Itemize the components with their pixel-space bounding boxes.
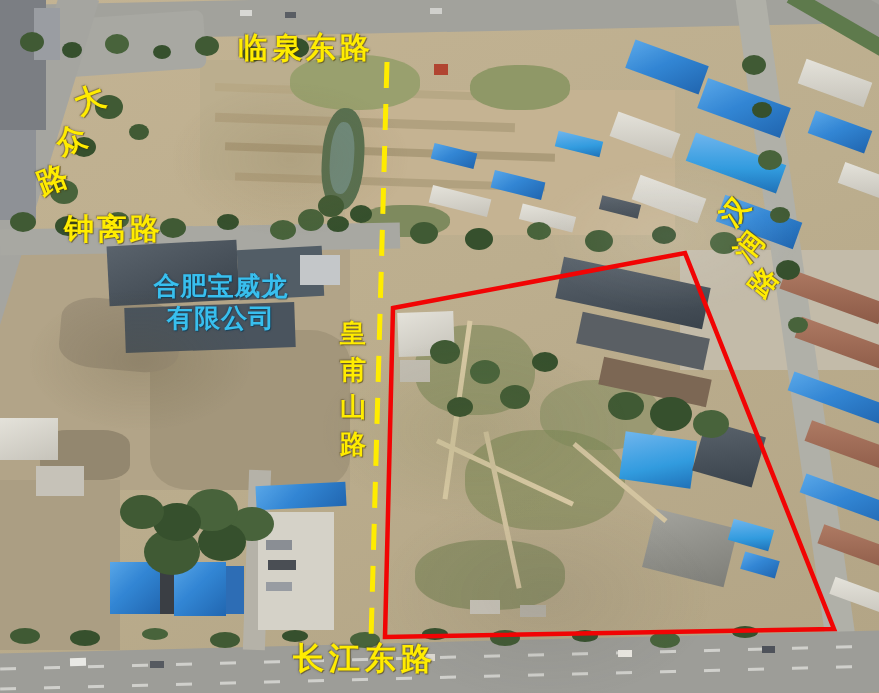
- road-label-changjiang-east-road: 长江东路: [293, 638, 437, 680]
- company-label: 合肥宝威龙 有限公司: [142, 270, 300, 334]
- terrain-texture: [0, 0, 879, 693]
- company-label-line1: 合肥宝威龙: [142, 270, 300, 302]
- road-label-huangfushan-road: 皇甫山路: [337, 315, 369, 463]
- company-label-line2: 有限公司: [142, 302, 300, 334]
- aerial-photo: 临泉东路 大众路 钟离路 皇甫山路 汉润路 长江东路 合肥宝威龙 有限公司: [0, 0, 879, 693]
- road-label-linquan-east-road: 临泉东路: [238, 28, 374, 69]
- road-label-zhongli-road: 钟离路: [64, 209, 163, 250]
- aerial-backdrop: [0, 0, 879, 693]
